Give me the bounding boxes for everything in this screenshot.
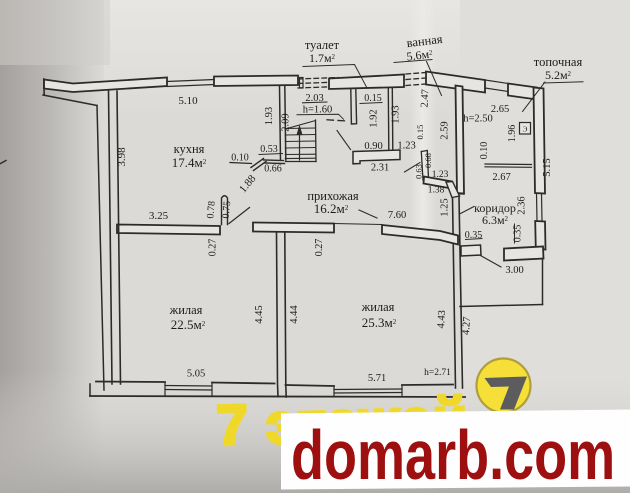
svg-text:0.15: 0.15 (415, 125, 425, 140)
svg-text:2.36: 2.36 (517, 196, 528, 214)
svg-text:1.23: 1.23 (397, 141, 415, 152)
svg-text:4.27: 4.27 (461, 316, 473, 335)
svg-text:туалет: туалет (305, 38, 340, 52)
svg-text:25.3м2: 25.3м2 (362, 315, 397, 330)
svg-text:5.10: 5.10 (178, 95, 198, 107)
svg-text:0.10: 0.10 (231, 153, 249, 164)
svg-text:1.93: 1.93 (391, 105, 402, 123)
svg-text:0.78: 0.78 (205, 201, 217, 219)
svg-text:h=1.60: h=1.60 (303, 105, 333, 116)
svg-text:2.65: 2.65 (491, 104, 509, 115)
svg-text:1.92: 1.92 (369, 109, 380, 127)
svg-text:0.66: 0.66 (264, 164, 282, 175)
svg-text:1.38: 1.38 (428, 186, 445, 196)
svg-text:0.68: 0.68 (423, 153, 433, 168)
svg-text:0.10: 0.10 (479, 142, 490, 160)
svg-text:7.60: 7.60 (388, 210, 406, 221)
svg-text:жилая: жилая (361, 300, 395, 314)
svg-text:0.75: 0.75 (221, 201, 233, 219)
svg-text:жилая: жилая (169, 303, 203, 317)
svg-text:кухня: кухня (174, 142, 205, 156)
svg-text:0.27: 0.27 (208, 239, 219, 257)
svg-text:5.05: 5.05 (187, 369, 205, 380)
svg-text:2.59: 2.59 (440, 121, 451, 139)
svg-text:3.00: 3.00 (505, 265, 523, 276)
svg-text:2.47: 2.47 (420, 89, 432, 108)
svg-text:0.63: 0.63 (414, 164, 424, 179)
svg-text:1.93: 1.93 (264, 107, 275, 125)
svg-text:0.35: 0.35 (513, 225, 524, 243)
svg-text:0.15: 0.15 (364, 93, 382, 104)
svg-text:0.90: 0.90 (364, 141, 382, 152)
svg-text:3.98: 3.98 (116, 147, 128, 167)
svg-text:0.53: 0.53 (260, 144, 278, 155)
svg-text:22.5м2: 22.5м2 (171, 317, 206, 332)
svg-text:4.45: 4.45 (254, 305, 265, 323)
svg-text:2.03: 2.03 (305, 93, 323, 104)
svg-text:h=2.50: h=2.50 (463, 114, 493, 125)
svg-text:5.71: 5.71 (368, 373, 386, 384)
svg-text:h=2.71: h=2.71 (424, 368, 451, 378)
svg-text:0.27: 0.27 (314, 239, 325, 257)
svg-text:17.4м2: 17.4м2 (172, 155, 207, 170)
svg-text:0.35: 0.35 (465, 230, 483, 241)
svg-text:16.2м2: 16.2м2 (314, 201, 349, 216)
svg-text:3.25: 3.25 (149, 210, 169, 222)
svg-text:1.25: 1.25 (440, 198, 451, 216)
svg-text:топочная: топочная (534, 55, 583, 69)
svg-text:1.96: 1.96 (507, 125, 518, 143)
svg-text:2.67: 2.67 (492, 172, 510, 183)
svg-text:5.15: 5.15 (542, 158, 553, 176)
svg-text:Э: Э (523, 125, 528, 134)
svg-text:1.23: 1.23 (432, 170, 449, 180)
svg-text:2.31: 2.31 (371, 163, 389, 174)
svg-text:2.09: 2.09 (281, 113, 292, 131)
svg-text:4.43: 4.43 (436, 310, 448, 329)
svg-text:4.44: 4.44 (289, 305, 300, 324)
svg-text:domarb.com: domarb.com (291, 416, 615, 493)
